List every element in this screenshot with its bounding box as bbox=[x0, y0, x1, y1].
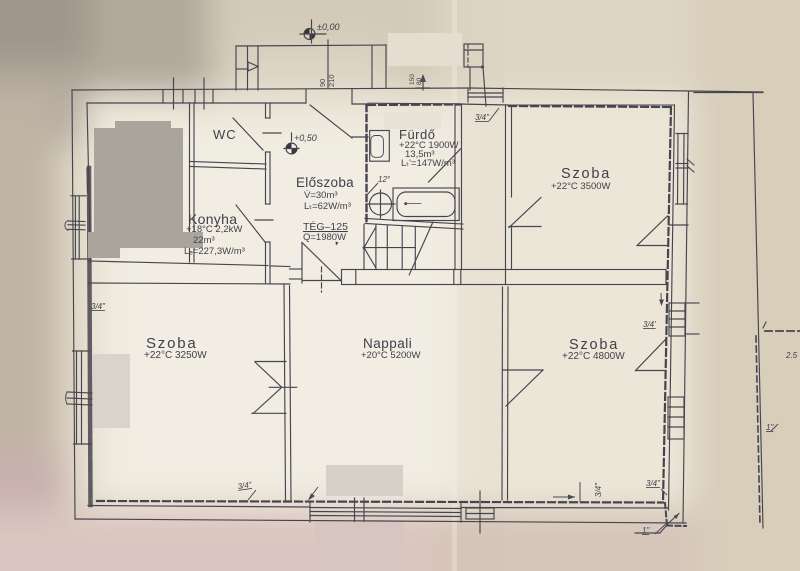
svg-text:12°: 12° bbox=[378, 175, 391, 184]
svg-text:WC: WC bbox=[213, 127, 237, 142]
svg-text:210: 210 bbox=[327, 74, 336, 87]
svg-text:V̇=30m³: V̇=30m³ bbox=[304, 190, 338, 201]
svg-text:+0,50: +0,50 bbox=[294, 133, 317, 143]
svg-text:Előszoba: Előszoba bbox=[296, 175, 354, 190]
svg-text:±0,00: ±0,00 bbox=[317, 22, 339, 32]
svg-text:80: 80 bbox=[416, 77, 423, 85]
svg-text:Q=1980W: Q=1980W bbox=[303, 232, 346, 243]
svg-text:1": 1" bbox=[766, 423, 774, 432]
svg-text:90: 90 bbox=[318, 79, 327, 87]
svg-text:2.5: 2.5 bbox=[785, 351, 798, 360]
svg-text:+22°C 4800W: +22°C 4800W bbox=[562, 351, 625, 362]
svg-text:3/4': 3/4' bbox=[643, 320, 656, 329]
svg-text:Lₑ=227,3W/m³: Lₑ=227,3W/m³ bbox=[184, 246, 245, 257]
svg-text:+22°C 3250W: +22°C 3250W bbox=[144, 350, 207, 361]
svg-text:3/4": 3/4" bbox=[475, 113, 490, 122]
svg-text:150: 150 bbox=[409, 74, 416, 85]
svg-text:1": 1" bbox=[642, 526, 650, 535]
svg-text:Nappali: Nappali bbox=[363, 336, 412, 351]
svg-text:+20°C 5200W: +20°C 5200W bbox=[361, 350, 421, 361]
svg-text:Lₜ=62W/m³: Lₜ=62W/m³ bbox=[304, 201, 351, 212]
svg-text:3/4": 3/4" bbox=[594, 482, 603, 497]
svg-text:+18°C 2,2kW: +18°C 2,2kW bbox=[186, 224, 242, 235]
svg-text:Lₜ'=147W/m³: Lₜ'=147W/m³ bbox=[401, 158, 455, 169]
svg-text:Szoba: Szoba bbox=[561, 166, 611, 182]
svg-text:3/4": 3/4" bbox=[646, 479, 661, 488]
svg-text:+22°C 3500W: +22°C 3500W bbox=[551, 181, 611, 192]
svg-text:22m³: 22m³ bbox=[193, 235, 215, 246]
svg-text:3/4": 3/4" bbox=[91, 302, 106, 311]
